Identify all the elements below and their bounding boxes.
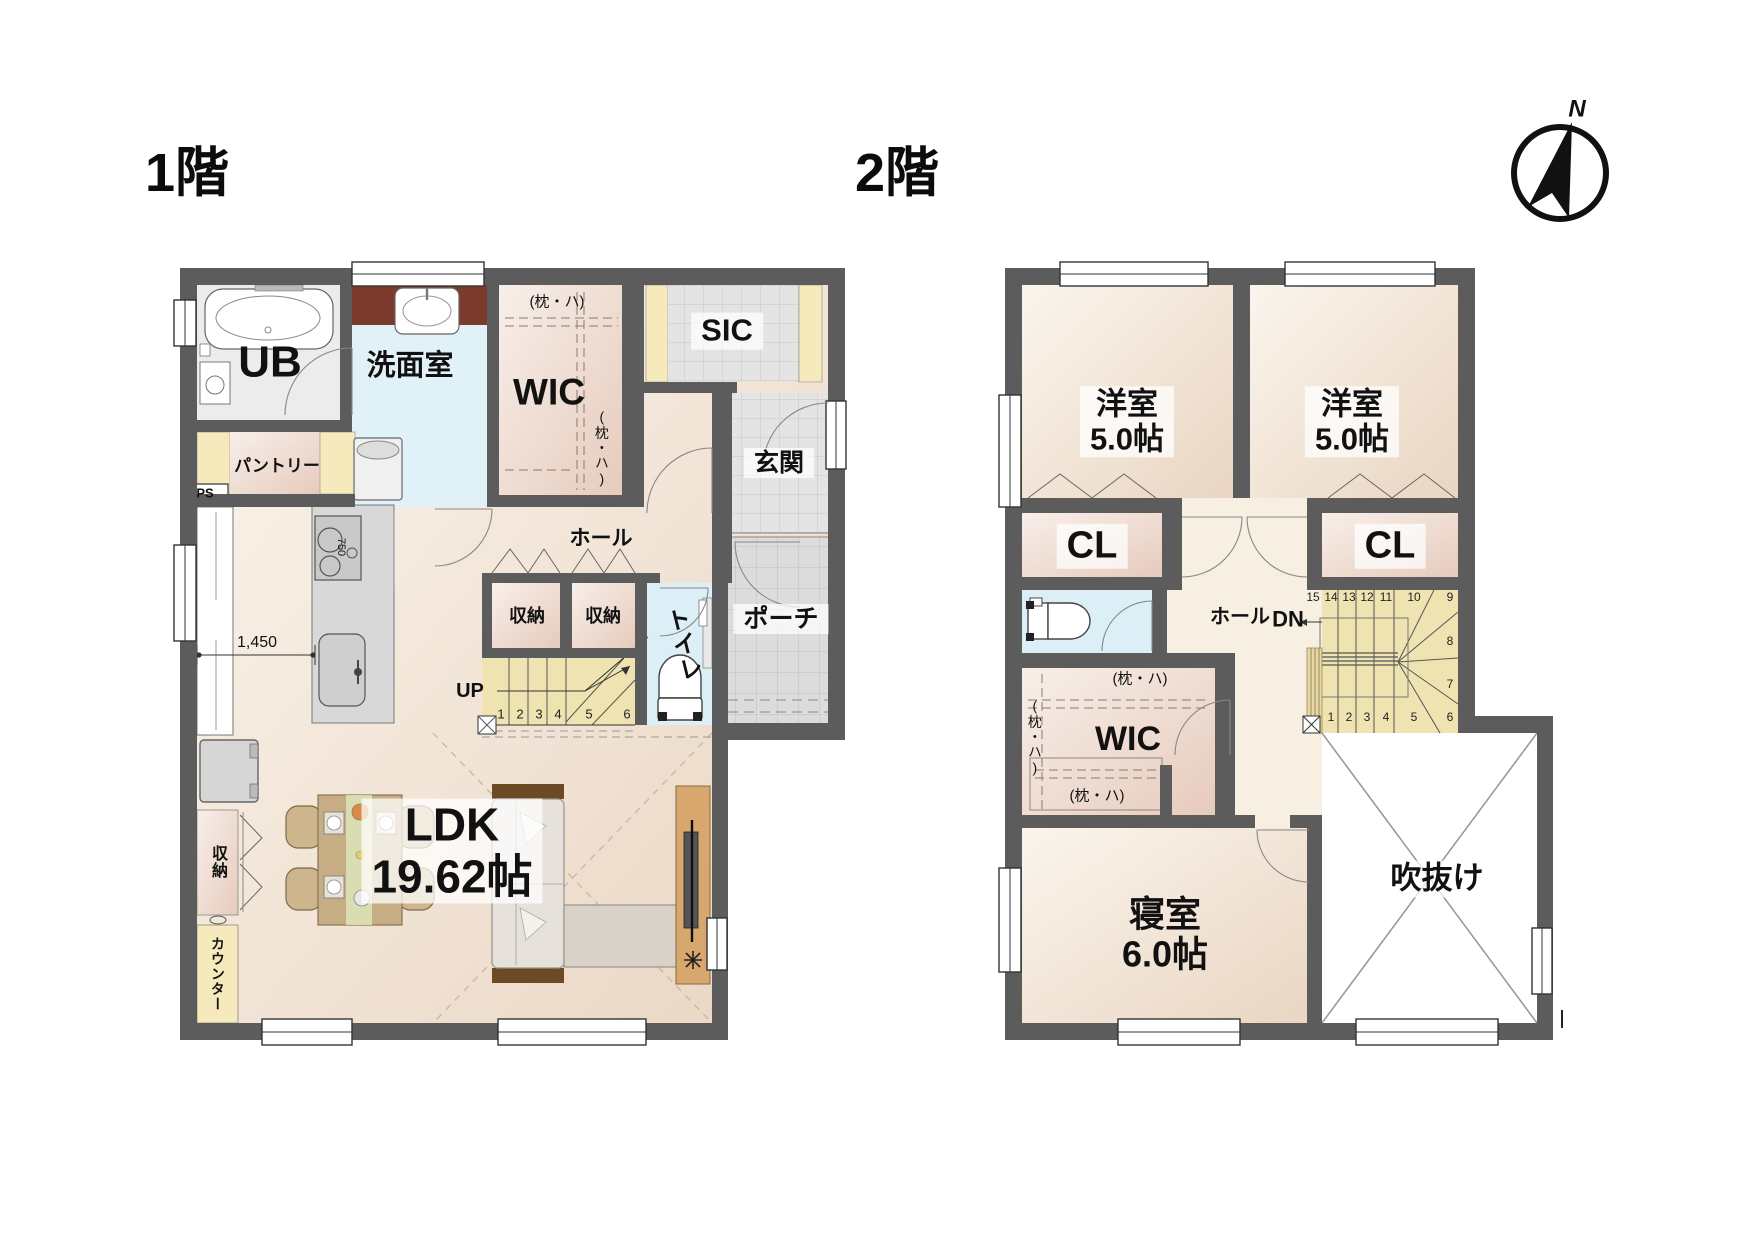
room-label-washroom: 洗面室 [366, 350, 453, 382]
f1-kitchen-island [312, 505, 394, 723]
cl-left-label: CL [1057, 524, 1128, 569]
wic-note-bottom-f2: (枕・ハ) [1070, 789, 1125, 806]
bedroom-name: 寝室 [1122, 895, 1208, 935]
room-label-pantry: パントリー [234, 456, 320, 475]
dimension-label: 1,450 [237, 634, 277, 652]
room-label-entrance: 玄関 [744, 448, 814, 478]
f1-chair [286, 868, 322, 910]
f2-stair-number: 1 [1328, 710, 1335, 724]
wic-note-side-f2: (枕・ハ) [1026, 698, 1042, 777]
f1-stair-number: 1 [497, 707, 504, 722]
floor2-title: 2階 [855, 128, 939, 207]
room-label-ldk: LDK 19.62帖 [361, 798, 542, 903]
room-label-bedroom: 寝室 6.0帖 [1122, 895, 1208, 976]
storage-left-label: 収納 [208, 845, 226, 879]
closet-b-label: 収納 [585, 606, 621, 626]
f1-stair-number: 5 [585, 707, 592, 722]
ldk-size: 19.62帖 [371, 851, 532, 903]
f1-kitchen-back-counter [197, 507, 233, 735]
f2-stair-number: 10 [1407, 590, 1420, 604]
f2-stair-number: 11 [1380, 590, 1392, 604]
counter-label: カウンター [209, 937, 225, 1012]
yoshitsu1-name: 洋室 [1090, 387, 1164, 422]
f1-stair-number: 4 [554, 707, 561, 722]
f1-sic-shelf-right [799, 285, 822, 382]
f1-stair-number: 3 [535, 707, 542, 722]
f1-stair-number: 2 [516, 707, 523, 722]
f1-refrigerator [200, 740, 258, 802]
wic-note-side-f1: (枕・ハ) [593, 409, 609, 488]
room-label-sic: SIC [691, 313, 763, 350]
f2-stair-number: 14 [1324, 590, 1337, 604]
f2-stair-number: 15 [1306, 590, 1319, 604]
f1-washing-machine [354, 438, 402, 500]
hall-label-f2: ホール [1210, 606, 1270, 628]
compass-icon [1514, 122, 1606, 219]
ps-label: PS [196, 487, 213, 502]
wic-note-top-f1: (枕・ハ) [530, 295, 585, 312]
f1-sic-shelf-left [646, 285, 668, 382]
f2-stair-number: 9 [1447, 590, 1454, 604]
room-label-ub: UB [238, 337, 302, 386]
floor1-title: 1階 [145, 128, 229, 207]
f2-stair-number: 5 [1411, 710, 1418, 724]
yoshitsu2-size: 5.0帖 [1315, 422, 1389, 457]
room-label-wic-f2: WIC [1095, 720, 1161, 758]
f2-stair-number: 8 [1447, 634, 1454, 648]
room-label-wic-f1: WIC [513, 371, 585, 412]
f2-stair-number: 12 [1360, 590, 1373, 604]
f1-stair-number: 6 [623, 707, 630, 722]
cl-right-label: CL [1355, 524, 1426, 569]
f2-stair-number: 7 [1447, 677, 1454, 691]
f1-pantry-shelf-right [320, 432, 355, 494]
hall-label-f1: ホール [570, 527, 633, 551]
void-label: 吹抜け [1381, 861, 1494, 898]
stairs-up-label: UP [456, 680, 484, 702]
f1-tv-board [676, 786, 710, 984]
stairs-dn-label: DN [1272, 608, 1304, 633]
wic-note-top-f2: (枕・ハ) [1113, 672, 1168, 689]
floorplan-canvas: 1階 2階 UB 洗面室 WIC (枕・ハ) (枕・ハ) SIC 玄関 ポーチ … [0, 0, 1755, 1240]
yoshitsu2-name: 洋室 [1315, 387, 1389, 422]
f2-stair-number: 4 [1383, 710, 1390, 724]
compass-north-label: N [1568, 97, 1585, 124]
f2-stair-number: 13 [1342, 590, 1355, 604]
f2-stair-number: 2 [1346, 710, 1353, 724]
room-label-porch: ポーチ [733, 604, 828, 634]
f1-plant-icon [684, 951, 702, 969]
ldk-name: LDK [371, 799, 532, 851]
yoshitsu1-size: 5.0帖 [1090, 422, 1164, 457]
f1-chair [286, 806, 322, 848]
f1-ottoman [564, 905, 690, 967]
f2-stair-number: 3 [1364, 710, 1371, 724]
stove-dim-label: 750 [335, 538, 347, 556]
room-label-yoshitsu1: 洋室 5.0帖 [1080, 386, 1174, 457]
bedroom-size: 6.0帖 [1122, 935, 1208, 975]
closet-a-label: 収納 [509, 606, 545, 626]
floor2-plan [999, 262, 1562, 1045]
f2-stair-number: 6 [1447, 710, 1454, 724]
room-label-yoshitsu2: 洋室 5.0帖 [1305, 386, 1399, 457]
